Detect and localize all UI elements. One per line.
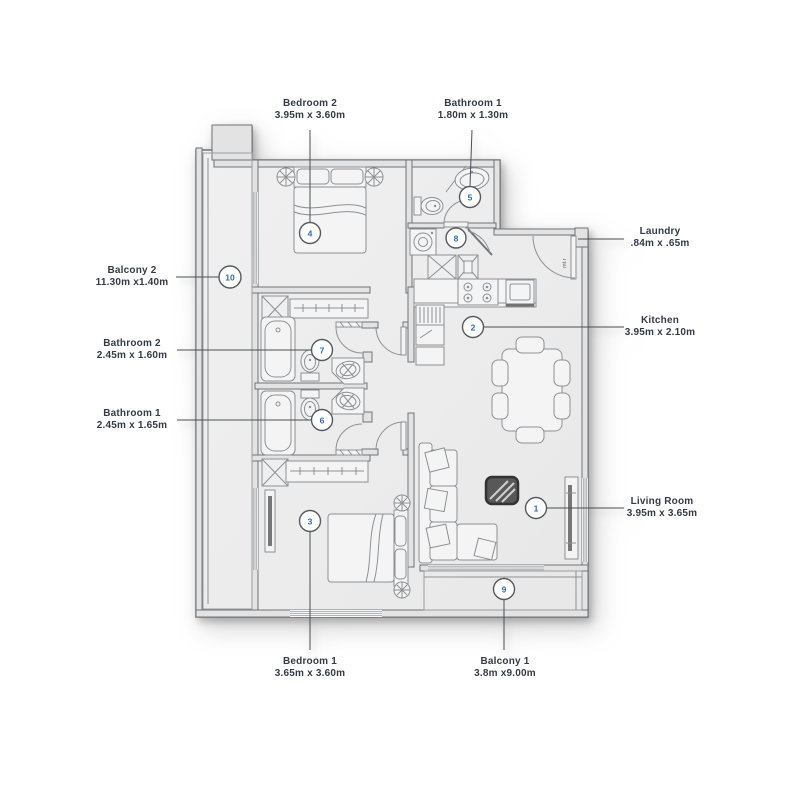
room-name: Kitchen [590,315,730,327]
room-name: Bedroom 2 [240,98,380,110]
label-balcony1: Balcony 1 3.8m x9.00m [435,656,575,680]
washing-machine-icon [410,229,436,255]
ceiling-fan-icon [394,582,410,598]
room-dims: 3.95m x 2.10m [590,327,730,339]
bed-icon [328,510,408,586]
meter-room-text: mt.r [562,258,568,268]
toilet-icon [414,197,443,215]
room-name: Bathroom 1 [62,408,202,420]
room-dims: 3.65m x 3.60m [240,668,380,680]
room-name: Balcony 2 [62,265,202,277]
marker-7: 7 [312,340,333,361]
room-dims: 2.45m x 1.60m [62,350,202,362]
closet-icon [286,461,368,482]
coffee-table-icon [486,477,518,504]
room-name: Bathroom 1 [403,98,543,110]
floorplan-page: mt.r 1 2 3 4 5 [0,0,800,800]
svg-text:5: 5 [468,193,473,203]
dining-table-icon [492,337,570,443]
label-bathroom1: Bathroom 1 2.45m x 1.65m [62,408,202,432]
room-name: Laundry [590,226,730,238]
svg-text:3: 3 [308,517,313,527]
ceiling-fan-icon [277,168,295,186]
marker-6: 6 [312,410,333,431]
marker-8: 8 [446,228,466,248]
svg-text:9: 9 [502,585,507,595]
room-dims: 2.45m x 1.65m [62,420,202,432]
shaft-icon [262,459,288,486]
label-living-room: Living Room 3.95m x 3.65m [592,496,732,520]
svg-text:6: 6 [320,416,325,426]
label-kitchen: Kitchen 3.95m x 2.10m [590,315,730,339]
marker-3: 3 [300,511,321,532]
shaft-icon [428,255,456,279]
bathtub-icon [261,317,295,381]
label-laundry: Laundry .84m x .65m [590,226,730,250]
room-name: Living Room [592,496,732,508]
label-bathroom1-top: Bathroom 1 1.80m x 1.30m [403,98,543,122]
tv-unit-icon [565,477,578,559]
label-bathroom2: Bathroom 2 2.45m x 1.60m [62,338,202,362]
marker-10: 10 [219,266,241,288]
label-balcony2: Balcony 2 11.30m x1.40m [62,265,202,289]
column-top-left [212,125,252,160]
label-bedroom2: Bedroom 2 3.95m x 3.60m [240,98,380,122]
counter-icon [416,347,444,365]
ceiling-fan-icon [394,495,410,511]
stove-icon [458,279,498,305]
ceiling-fan-icon [365,168,383,186]
room-dims: 11.30m x1.40m [62,277,202,289]
column-entry [575,228,588,247]
svg-text:2: 2 [471,323,476,333]
marker-1: 1 [526,498,547,519]
closet-icon [290,299,368,318]
room-name: Bedroom 1 [240,656,380,668]
floorplan-drawing: mt.r 1 2 3 4 5 [0,0,800,800]
marker-9: 9 [494,579,515,600]
svg-text:1: 1 [534,504,539,514]
svg-text:7: 7 [320,346,325,356]
fridge-icon [416,305,444,345]
room-dims: .84m x .65m [590,238,730,250]
label-bedroom1: Bedroom 1 3.65m x 3.60m [240,656,380,680]
room-dims: 3.95m x 3.65m [592,508,732,520]
marker-2: 2 [463,317,484,338]
svg-text:4: 4 [308,229,313,239]
room-dims: 1.80m x 1.30m [403,110,543,122]
marker-5: 5 [460,187,481,208]
svg-text:8: 8 [454,234,459,244]
room-name: Balcony 1 [435,656,575,668]
svg-text:10: 10 [225,273,235,283]
room-dims: 3.95m x 3.60m [240,110,380,122]
shaft-icon [458,255,478,279]
tv-icon [265,490,275,552]
room-name: Bathroom 2 [62,338,202,350]
bathtub-icon [261,391,295,455]
marker-4: 4 [300,223,321,244]
room-dims: 3.8m x9.00m [435,668,575,680]
kitchen-sink-icon [506,280,534,307]
